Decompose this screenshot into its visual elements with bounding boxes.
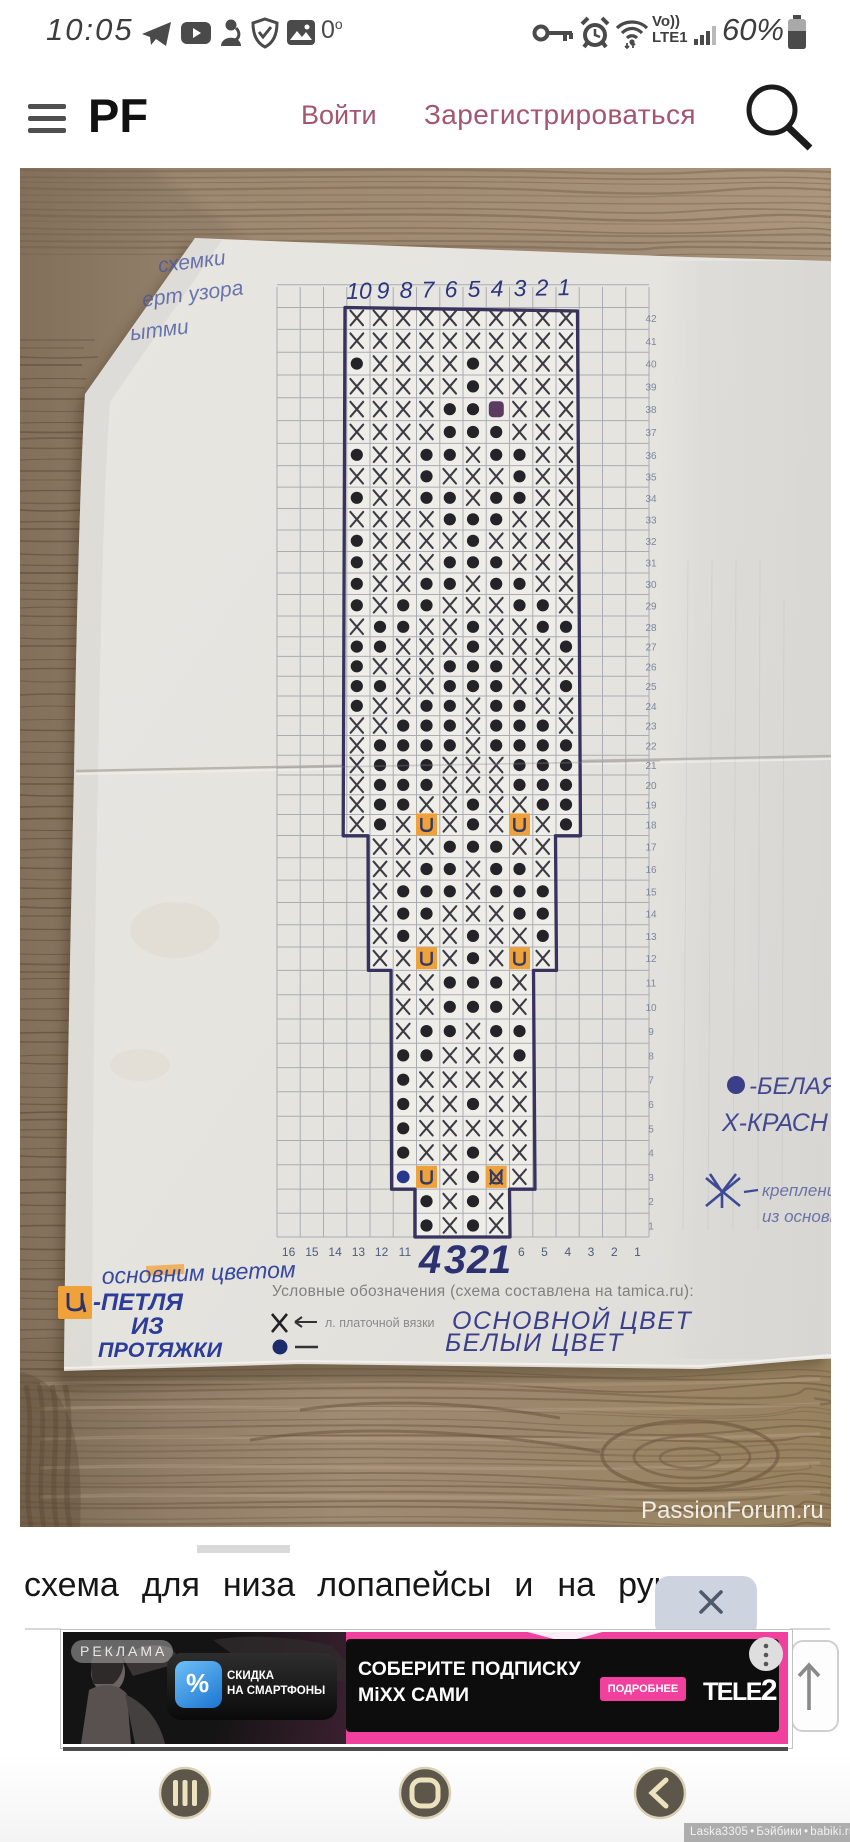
svg-text:42: 42 — [645, 314, 657, 325]
svg-text:4: 4 — [418, 1238, 441, 1282]
svg-text:13: 13 — [645, 932, 657, 943]
svg-text:ПРОТЯЖКИ: ПРОТЯЖКИ — [98, 1338, 222, 1362]
svg-text:1: 1 — [648, 1222, 654, 1233]
svg-text:17: 17 — [645, 843, 657, 854]
svg-text:39: 39 — [645, 382, 657, 393]
svg-text:10: 10 — [645, 1003, 657, 1014]
svg-text:из основы: из основы — [762, 1207, 831, 1226]
svg-text:8: 8 — [399, 277, 412, 303]
svg-text:1: 1 — [634, 1245, 641, 1259]
svg-text:9: 9 — [648, 1027, 654, 1038]
svg-text:1: 1 — [489, 1238, 511, 1282]
svg-text:11: 11 — [646, 979, 657, 990]
svg-text:3: 3 — [588, 1245, 595, 1259]
svg-text:18: 18 — [645, 820, 657, 831]
svg-text:15: 15 — [305, 1245, 319, 1259]
svg-text:7: 7 — [421, 276, 435, 302]
svg-text:10: 10 — [346, 278, 372, 304]
svg-text:2: 2 — [466, 1238, 489, 1282]
svg-text:34: 34 — [645, 494, 657, 505]
svg-text:29: 29 — [645, 601, 657, 612]
svg-text:25: 25 — [645, 682, 657, 693]
svg-text:4: 4 — [564, 1245, 571, 1259]
svg-text:11: 11 — [399, 1245, 412, 1259]
svg-text:28: 28 — [645, 623, 657, 634]
svg-text:36: 36 — [645, 451, 657, 462]
svg-text:4: 4 — [490, 275, 503, 301]
svg-text:31: 31 — [645, 558, 657, 569]
svg-text:л. платочной вязки: л. платочной вязки — [325, 1316, 435, 1330]
svg-text:крепление: крепление — [762, 1181, 831, 1200]
svg-text:37: 37 — [645, 428, 657, 439]
svg-text:38: 38 — [645, 405, 657, 416]
svg-text:3: 3 — [513, 275, 526, 301]
svg-text:-ПЕТЛЯ: -ПЕТЛЯ — [93, 1289, 183, 1316]
svg-text:X-КРАСН: X-КРАСН — [721, 1109, 829, 1137]
svg-text:2: 2 — [611, 1245, 618, 1259]
svg-text:20: 20 — [645, 781, 657, 792]
svg-text:26: 26 — [645, 662, 657, 673]
svg-text:9: 9 — [376, 277, 389, 303]
svg-text:4: 4 — [648, 1149, 654, 1160]
svg-text:30: 30 — [645, 580, 657, 591]
svg-text:14: 14 — [328, 1245, 342, 1259]
svg-text:ИЗ: ИЗ — [131, 1313, 164, 1340]
svg-text:33: 33 — [645, 515, 657, 526]
svg-text:23: 23 — [645, 722, 657, 733]
svg-text:PassionForum.ru: PassionForum.ru — [641, 1497, 824, 1524]
svg-text:12: 12 — [645, 954, 657, 965]
svg-text:14: 14 — [645, 910, 657, 921]
svg-text:41: 41 — [645, 337, 657, 348]
svg-text:2: 2 — [648, 1197, 654, 1208]
svg-text:22: 22 — [645, 741, 657, 752]
svg-text:27: 27 — [645, 643, 657, 654]
svg-text:15: 15 — [645, 887, 657, 898]
svg-text:3: 3 — [648, 1173, 654, 1184]
svg-text:БЕЛЫИ ЦВЕТ: БЕЛЫИ ЦВЕТ — [445, 1329, 624, 1357]
svg-text:8: 8 — [648, 1051, 654, 1062]
svg-text:13: 13 — [352, 1245, 366, 1259]
svg-text:12: 12 — [375, 1245, 389, 1259]
svg-text:2: 2 — [534, 274, 548, 300]
svg-text:6: 6 — [518, 1245, 525, 1259]
svg-text:19: 19 — [645, 801, 657, 812]
svg-text:Условные обозначения (схема со: Условные обозначения (схема составлена н… — [272, 1283, 694, 1300]
svg-text:5: 5 — [541, 1245, 548, 1259]
svg-text:-БЕЛАЯ: -БЕЛАЯ — [749, 1073, 831, 1100]
svg-text:1: 1 — [557, 274, 570, 300]
svg-text:3: 3 — [444, 1238, 466, 1282]
svg-text:24: 24 — [645, 702, 657, 713]
svg-text:16: 16 — [645, 865, 657, 876]
svg-text:6: 6 — [648, 1100, 654, 1111]
svg-text:35: 35 — [645, 472, 657, 483]
svg-text:7: 7 — [648, 1076, 654, 1087]
svg-text:32: 32 — [645, 537, 657, 548]
svg-text:6: 6 — [444, 276, 457, 302]
svg-text:40: 40 — [645, 360, 657, 371]
svg-text:21: 21 — [645, 761, 657, 772]
svg-text:5: 5 — [467, 276, 480, 302]
svg-text:5: 5 — [648, 1124, 654, 1135]
